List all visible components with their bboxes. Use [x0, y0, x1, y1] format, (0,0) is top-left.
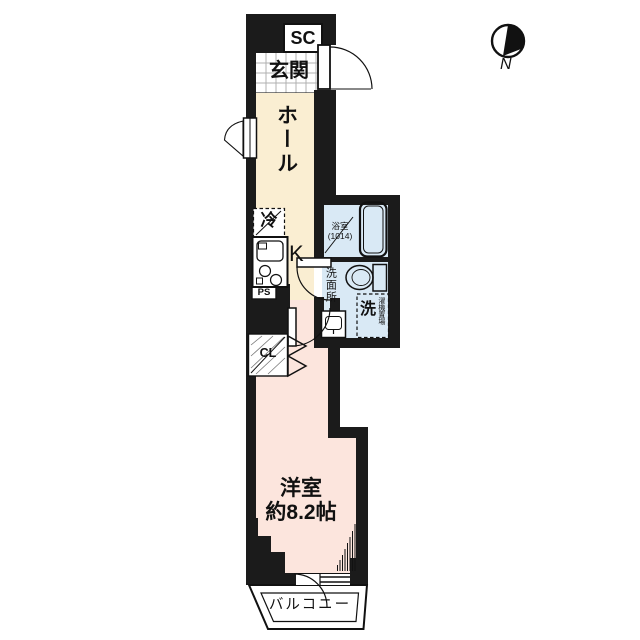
closet-label: CL	[250, 346, 286, 360]
north-label: N	[500, 56, 512, 74]
bathroom-label: 浴室 (1014)	[320, 222, 360, 241]
bedroom-label: 洋室 約8.2帖	[248, 477, 354, 524]
washing-machine-sublabel: 濯機置場	[377, 297, 385, 335]
bedroom-label-size: 約8.2帖	[248, 501, 354, 525]
floor-plan: SC 玄関 ホール 冷 K 浴室 (1014) 洗面所 洗 濯機置場 PS CL…	[0, 0, 640, 640]
north-arrow-icon	[492, 25, 524, 57]
balcony-label: バルコニー	[260, 597, 360, 613]
window-swing-icon	[225, 121, 244, 156]
bathroom-label-size: (1014)	[320, 232, 360, 242]
kitchen-counter	[253, 237, 288, 287]
entrance-door-arc	[330, 47, 372, 89]
hall-label: ホール	[274, 104, 298, 219]
kitchen-label: K	[289, 242, 304, 267]
washing-machine-label: 洗	[360, 301, 376, 319]
pipe-space-label: PS	[252, 288, 276, 299]
entrance-door	[318, 45, 372, 89]
entrance-label: 玄関	[256, 60, 322, 82]
washroom-label: 洗面所	[324, 267, 336, 319]
refrigerator-label: 冷	[253, 211, 285, 230]
hall-window	[225, 118, 257, 158]
shoe-closet-label: SC	[284, 28, 322, 48]
bedroom-label-name: 洋室	[248, 477, 354, 501]
floor-plan-drawing	[0, 0, 640, 640]
